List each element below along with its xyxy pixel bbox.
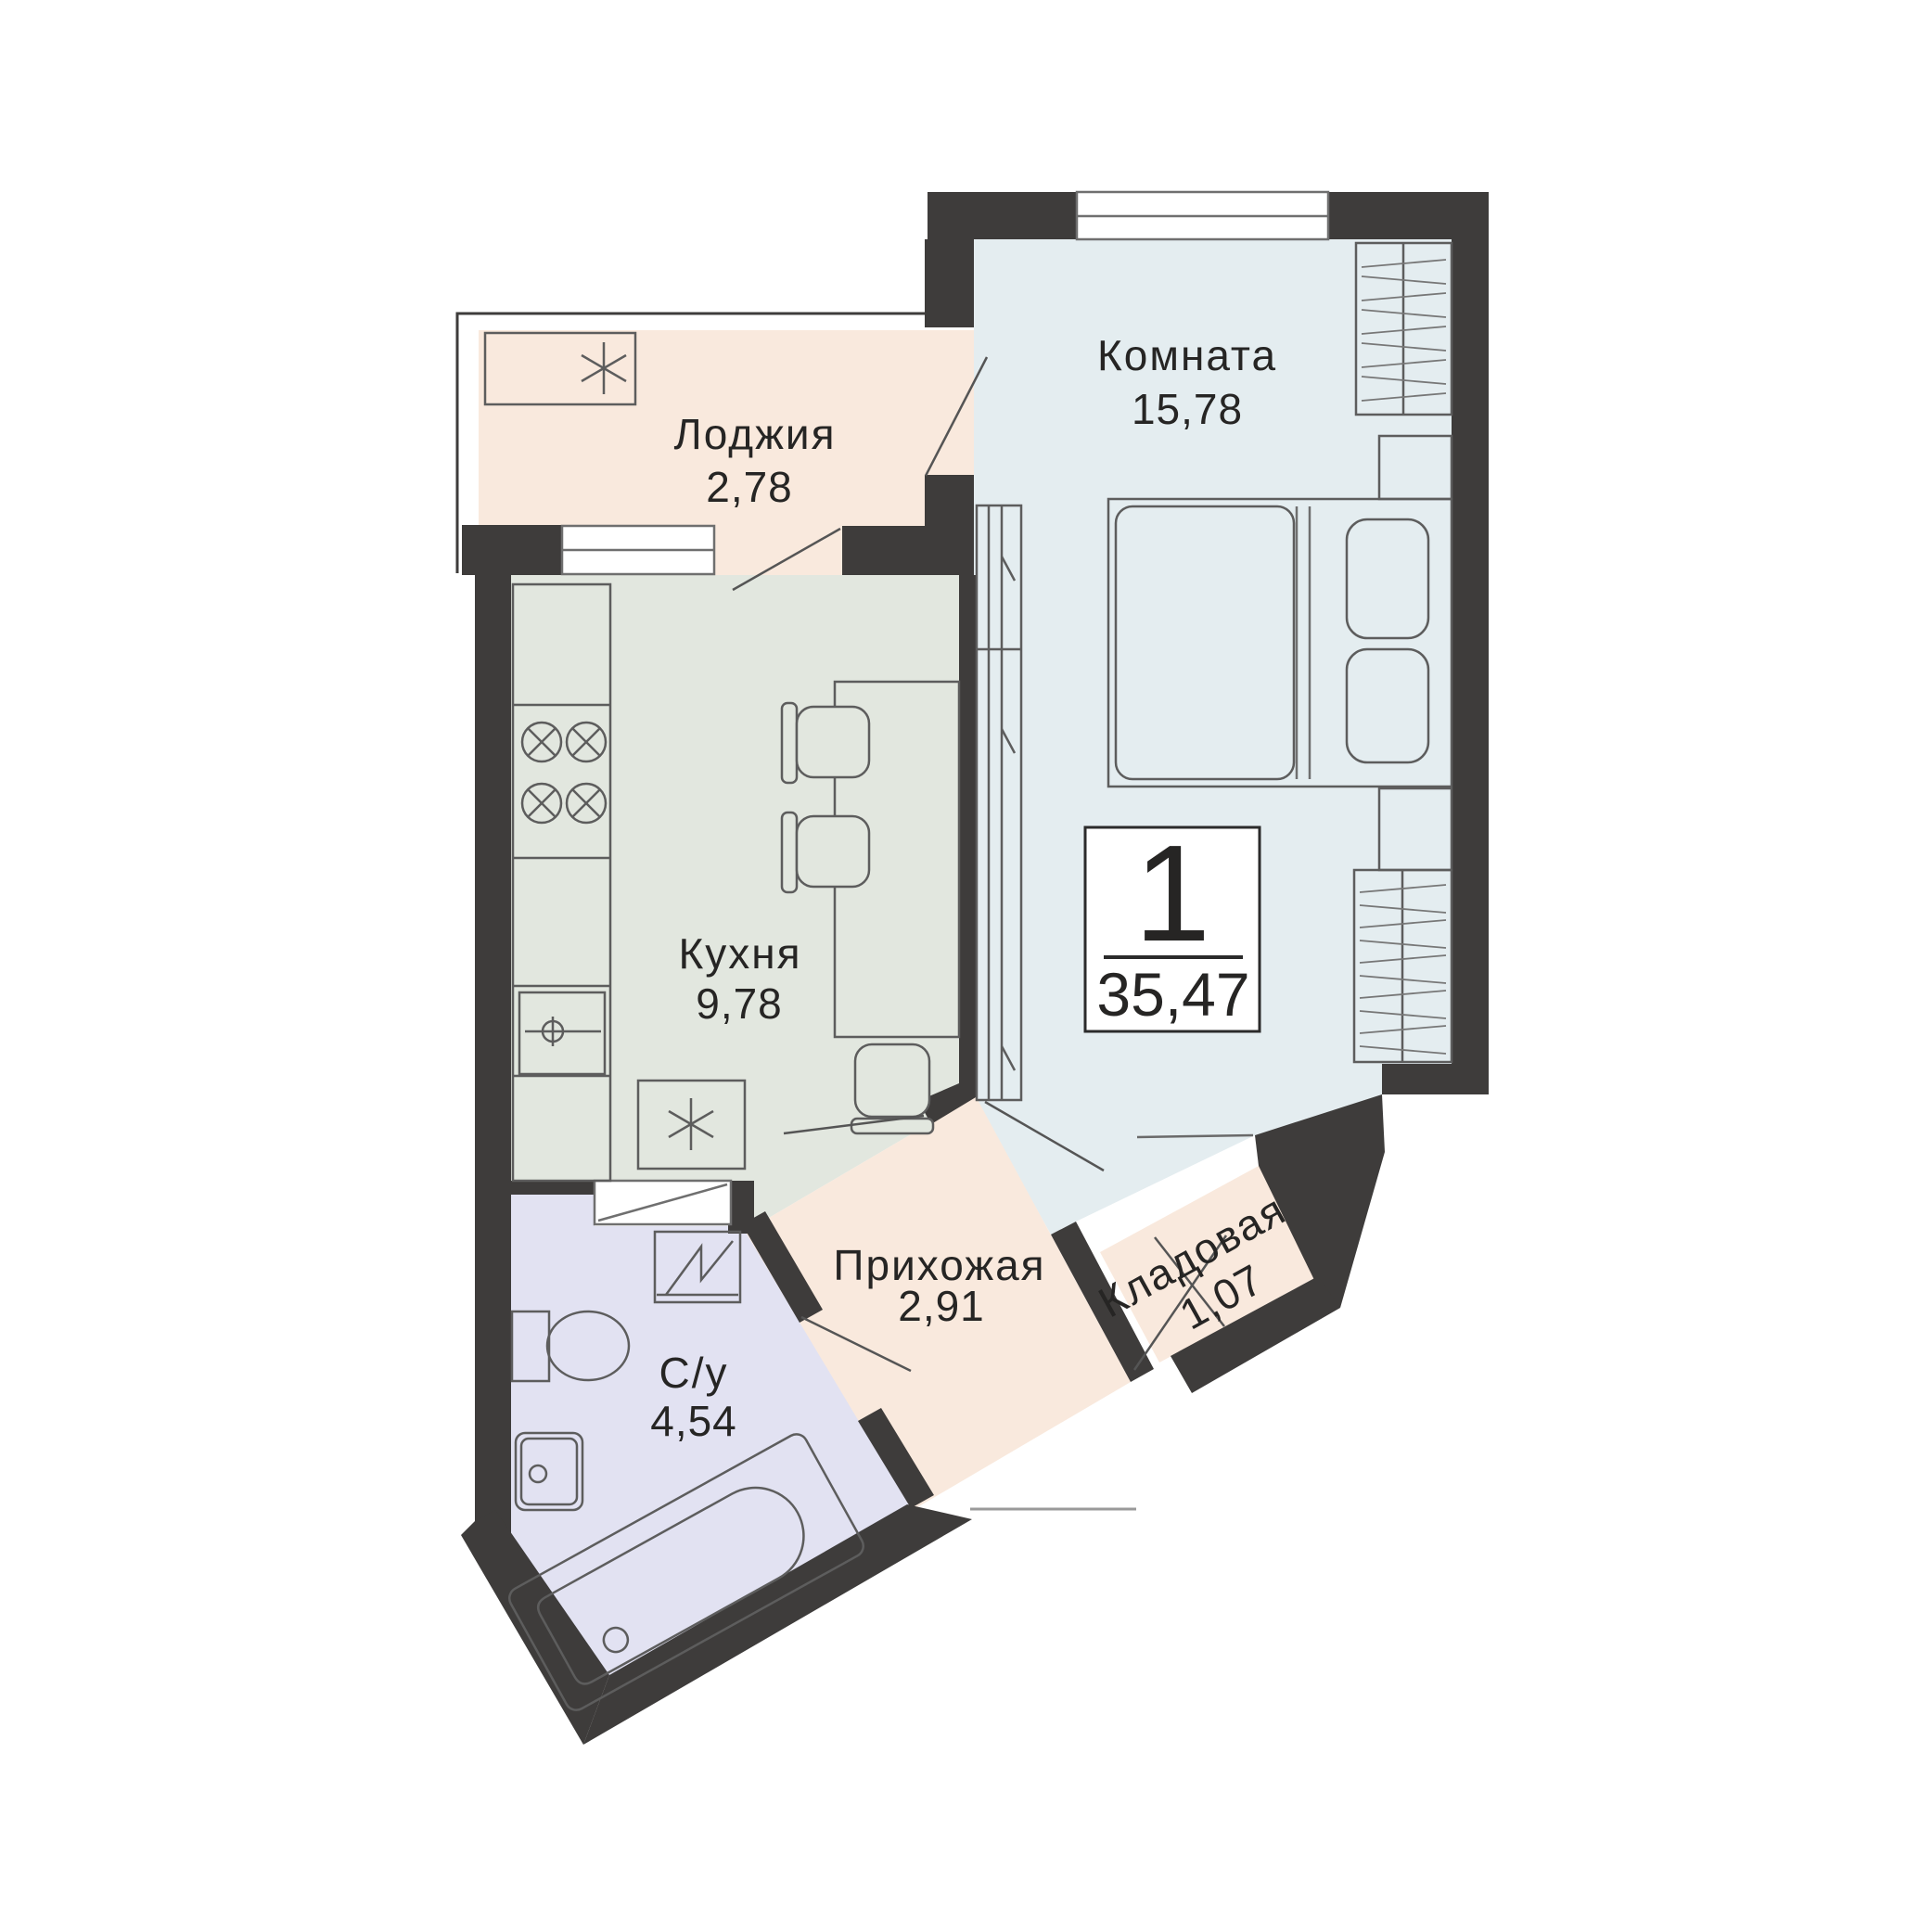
wall-kitchen-bathroom	[511, 1181, 595, 1195]
room-label-living: Комната	[1097, 331, 1277, 379]
room-area-loggia: 2,78	[706, 463, 793, 511]
room-label-kitchen: Кухня	[678, 929, 801, 978]
apartment-badge: 1 35,47	[1085, 817, 1260, 1031]
room-area-living: 15,78	[1132, 385, 1243, 433]
wall-top-right	[1328, 192, 1489, 239]
kitchen-floor	[511, 575, 976, 1234]
chair	[782, 703, 869, 783]
wall-right	[1452, 239, 1489, 1094]
wall-top-left	[928, 192, 1077, 239]
badge-rooms-count: 1	[1134, 817, 1210, 970]
room-area-hallway: 2,91	[898, 1282, 985, 1330]
floor-plan-page: Комната 15,78 Лоджия 2,78 Кухня 9,78 При…	[0, 0, 1932, 1932]
window-loggia-kitchen	[562, 526, 714, 574]
room-area-kitchen: 9,78	[696, 979, 783, 1028]
wall-room-left-upper	[925, 239, 974, 327]
wall-step	[1382, 1064, 1489, 1094]
room-area-bathroom: 4,54	[650, 1397, 737, 1445]
chair	[782, 812, 869, 892]
floor-plan: Комната 15,78 Лоджия 2,78 Кухня 9,78 При…	[0, 0, 1932, 1932]
badge-total-area: 35,47	[1096, 960, 1249, 1029]
wall-loggia-corner	[462, 525, 562, 575]
room-label-loggia: Лоджия	[674, 410, 837, 458]
wall-left	[475, 575, 511, 1540]
wall-kitchen-room	[959, 575, 976, 1081]
window-kitchen-bathroom	[595, 1181, 731, 1224]
window-top	[1077, 192, 1328, 239]
room-label-bathroom: С/у	[659, 1349, 729, 1397]
